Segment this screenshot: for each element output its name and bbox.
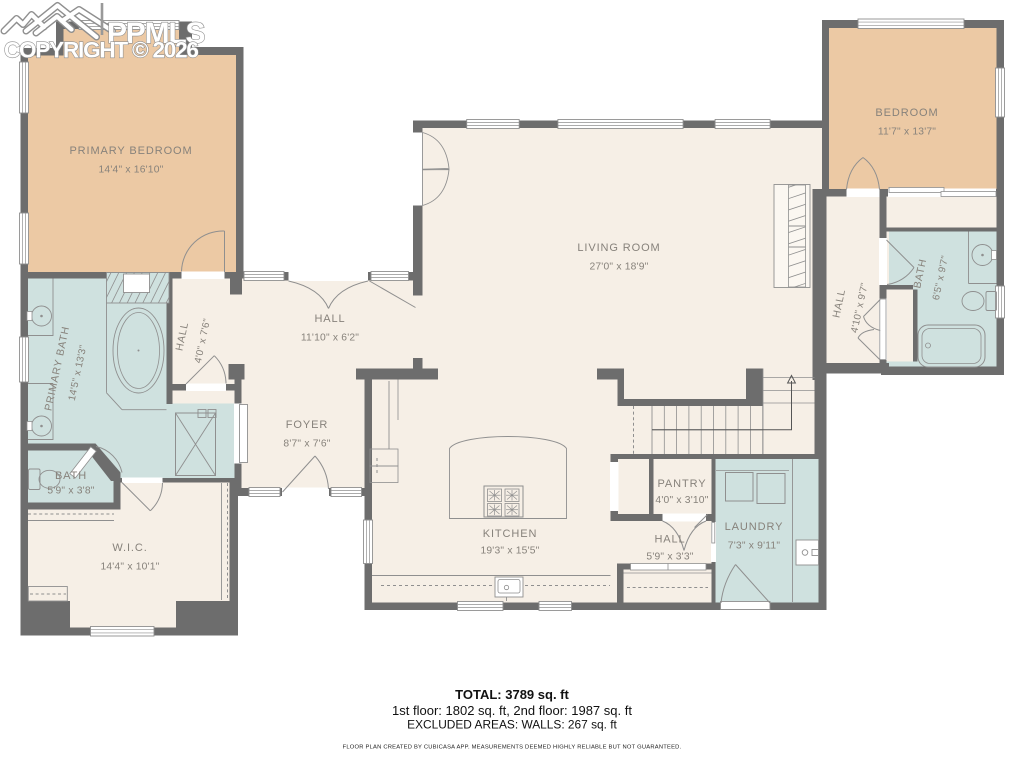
svg-text:14'4" x 10'1": 14'4" x 10'1" — [100, 562, 159, 573]
svg-text:5'9" x 3'3": 5'9" x 3'3" — [646, 552, 693, 563]
svg-text:14'4" x 16'10": 14'4" x 16'10" — [99, 165, 164, 176]
svg-text:8'7" x 7'6": 8'7" x 7'6" — [283, 439, 330, 450]
svg-text:HALL: HALL — [654, 534, 685, 546]
svg-text:FLOOR PLAN CREATED BY CUBICASA: FLOOR PLAN CREATED BY CUBICASA APP. MEAS… — [343, 744, 682, 750]
svg-text:BATH: BATH — [55, 470, 87, 482]
svg-text:27'0" x 18'9": 27'0" x 18'9" — [589, 262, 648, 273]
svg-text:1st floor: 1802 sq. ft, 2nd fl: 1st floor: 1802 sq. ft, 2nd floor: 1987 … — [392, 703, 632, 718]
svg-text:19'3" x 15'5": 19'3" x 15'5" — [480, 546, 539, 557]
svg-text:7'3" x 9'11": 7'3" x 9'11" — [728, 541, 781, 552]
svg-text:KITCHEN: KITCHEN — [483, 528, 538, 540]
svg-text:LIVING ROOM: LIVING ROOM — [577, 242, 660, 254]
svg-text:EXCLUDED AREAS: WALLS: 267 sq.: EXCLUDED AREAS: WALLS: 267 sq. ft — [407, 717, 617, 731]
svg-text:FOYER: FOYER — [286, 419, 328, 431]
svg-text:11'10" x 6'2": 11'10" x 6'2" — [301, 333, 359, 344]
svg-text:LAUNDRY: LAUNDRY — [725, 521, 784, 533]
svg-text:5'9" x 3'8": 5'9" x 3'8" — [47, 486, 94, 497]
svg-text:W.I.C.: W.I.C. — [112, 542, 147, 554]
svg-text:COPYRIGHT © 2026: COPYRIGHT © 2026 — [4, 38, 198, 63]
svg-text:4'0" x 3'10": 4'0" x 3'10" — [655, 495, 708, 506]
svg-text:PANTRY: PANTRY — [657, 478, 706, 490]
svg-text:11'7" x 13'7": 11'7" x 13'7" — [878, 127, 936, 138]
svg-text:BEDROOM: BEDROOM — [875, 107, 938, 119]
svg-text:TOTAL: 3789 sq. ft: TOTAL: 3789 sq. ft — [455, 687, 569, 702]
svg-text:PRIMARY BEDROOM: PRIMARY BEDROOM — [69, 145, 192, 157]
svg-text:HALL: HALL — [314, 313, 345, 325]
